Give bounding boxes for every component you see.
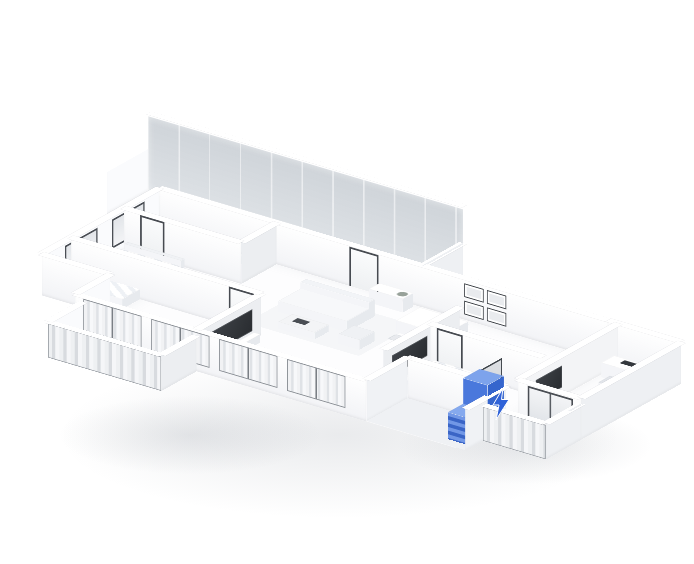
floorplan-render (0, 0, 694, 564)
wall-picture (464, 283, 483, 302)
ground-shadow-left (40, 390, 340, 480)
lightning-icon[interactable] (492, 388, 510, 420)
wall-picture (464, 301, 483, 320)
wall-picture (487, 307, 506, 326)
wall-picture (487, 290, 506, 309)
